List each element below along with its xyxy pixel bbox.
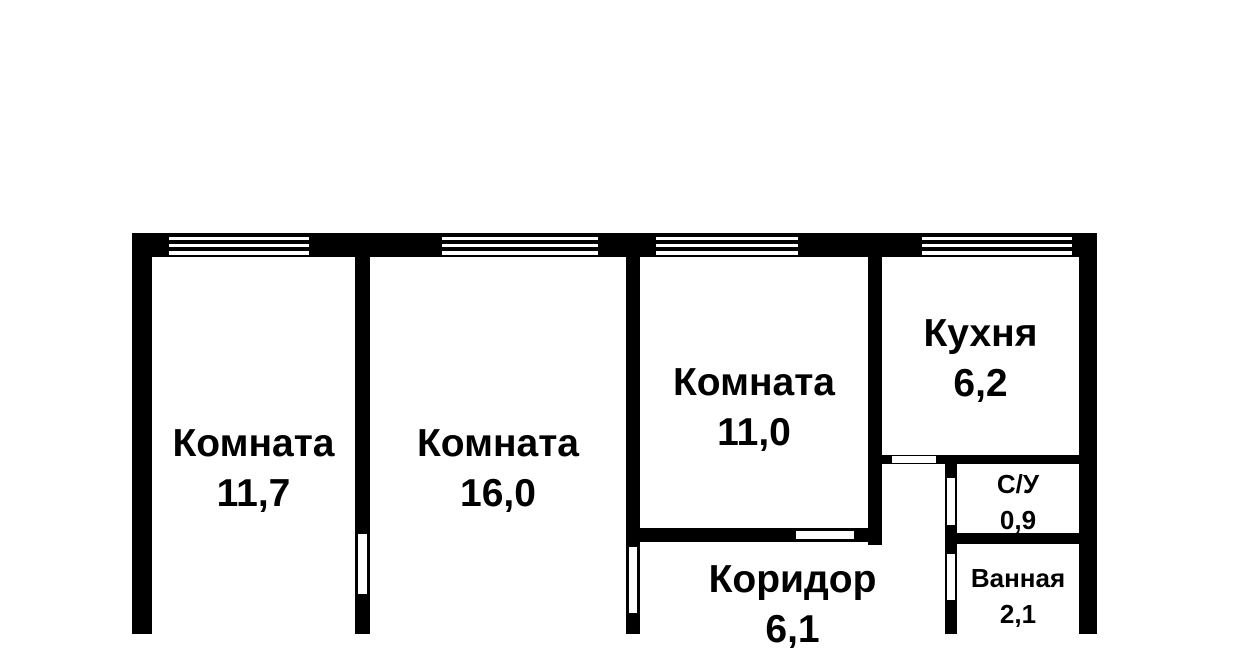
- wc-label: С/У 0,9: [957, 466, 1079, 538]
- room-3-name: Комната: [640, 358, 868, 408]
- window-glass-line: [922, 247, 1072, 251]
- door-opening-room3: [794, 531, 856, 539]
- window-glass-line: [169, 247, 309, 251]
- corridor-area: 6,1: [640, 605, 945, 655]
- room-1-label: Комната 11,7: [152, 419, 355, 519]
- window-room-3: [656, 237, 798, 255]
- kitchen-area: 6,2: [882, 359, 1079, 409]
- bathroom-name: Ванная: [957, 560, 1079, 596]
- room-1-name: Комната: [152, 419, 355, 469]
- room-2-name: Комната: [370, 419, 626, 469]
- window-glass-line: [442, 247, 598, 251]
- kitchen-name: Кухня: [882, 309, 1079, 359]
- door-opening-room1: [358, 532, 367, 596]
- wall-left: [132, 233, 152, 634]
- door-opening-wc: [947, 476, 955, 527]
- corridor-name: Коридор: [640, 555, 945, 605]
- bathroom-area: 2,1: [957, 596, 1079, 632]
- wall-right: [1079, 233, 1097, 634]
- window-room-1: [169, 237, 309, 255]
- room-3-label: Комната 11,0: [640, 358, 868, 458]
- room-2-label: Комната 16,0: [370, 419, 626, 519]
- window-glass-line: [922, 240, 1072, 244]
- floor-plan: Комната 11,7 Комната 16,0 Комната 11,0 К…: [0, 0, 1236, 634]
- door-opening-room2: [629, 545, 637, 615]
- wall-room3-kitchen: [868, 255, 882, 545]
- bathroom-label: Ванная 2,1: [957, 560, 1079, 632]
- wc-area: 0,9: [957, 502, 1079, 538]
- door-opening-bathroom: [947, 552, 955, 602]
- window-glass-line: [442, 240, 598, 244]
- window-kitchen: [922, 237, 1072, 255]
- corridor-label: Коридор 6,1: [640, 555, 945, 655]
- window-glass-line: [656, 247, 798, 251]
- window-glass-line: [656, 240, 798, 244]
- room-1-area: 11,7: [152, 469, 355, 519]
- kitchen-label: Кухня 6,2: [882, 309, 1079, 409]
- door-opening-kitchen: [890, 456, 938, 463]
- wc-name: С/У: [957, 466, 1079, 502]
- room-2-area: 16,0: [370, 469, 626, 519]
- window-room-2: [442, 237, 598, 255]
- room-3-area: 11,0: [640, 408, 868, 458]
- window-glass-line: [169, 240, 309, 244]
